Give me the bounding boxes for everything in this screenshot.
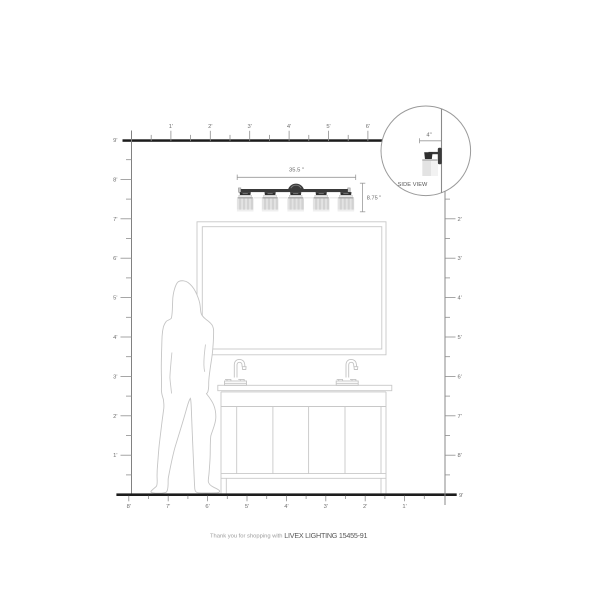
svg-text:4': 4' — [284, 504, 288, 510]
svg-text:6': 6' — [366, 124, 370, 130]
svg-text:6': 6' — [113, 256, 117, 262]
svg-text:3': 3' — [248, 124, 252, 130]
svg-text:1': 1' — [402, 504, 406, 510]
svg-text:7': 7' — [166, 504, 170, 510]
svg-text:1': 1' — [169, 124, 173, 130]
svg-text:7': 7' — [113, 217, 117, 223]
svg-text:SIDE VIEW: SIDE VIEW — [398, 182, 428, 188]
svg-text:3': 3' — [113, 374, 117, 380]
svg-text:2': 2' — [113, 414, 117, 420]
svg-text:2': 2' — [208, 124, 212, 130]
svg-text:5': 5' — [245, 504, 249, 510]
svg-text:LIVEX LIGHTING 15455-91: LIVEX LIGHTING 15455-91 — [284, 531, 367, 540]
svg-text:6': 6' — [458, 374, 462, 380]
svg-text:5': 5' — [326, 124, 330, 130]
svg-text:4": 4" — [426, 132, 431, 138]
svg-text:8': 8' — [458, 453, 462, 459]
svg-text:3': 3' — [324, 504, 328, 510]
svg-text:4': 4' — [458, 296, 462, 302]
svg-text:9': 9' — [113, 138, 117, 144]
svg-text:2': 2' — [363, 504, 367, 510]
svg-text:1': 1' — [113, 453, 117, 459]
svg-text:8': 8' — [113, 177, 117, 183]
svg-text:Thank you for shopping with: Thank you for shopping with — [210, 534, 283, 540]
svg-text:2': 2' — [458, 217, 462, 223]
svg-text:35.5 ": 35.5 " — [289, 168, 304, 174]
svg-text:8': 8' — [127, 504, 131, 510]
svg-text:6': 6' — [205, 504, 209, 510]
svg-text:8.75 ": 8.75 " — [367, 195, 381, 201]
svg-text:4': 4' — [287, 124, 291, 130]
svg-text:9': 9' — [459, 493, 463, 499]
svg-text:7': 7' — [458, 414, 462, 420]
svg-text:4': 4' — [113, 335, 117, 341]
svg-text:5': 5' — [113, 296, 117, 302]
svg-text:3': 3' — [458, 256, 462, 262]
svg-text:5': 5' — [458, 335, 462, 341]
